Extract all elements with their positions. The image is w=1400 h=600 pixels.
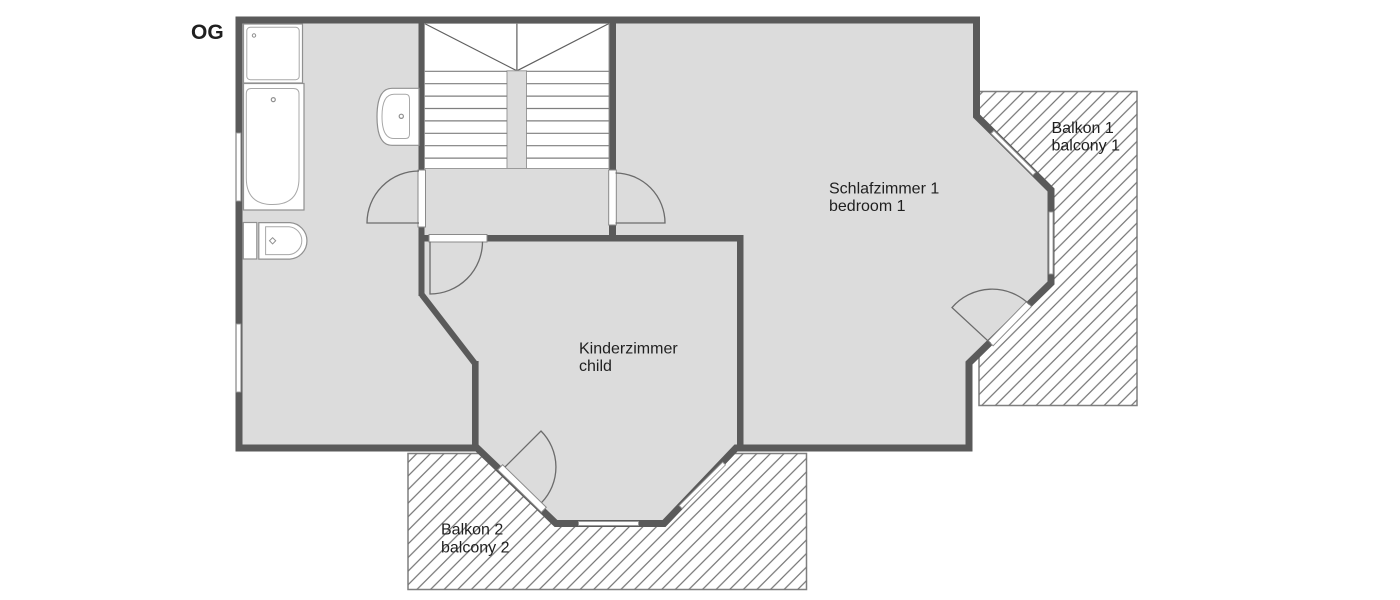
svg-text:balcony 1: balcony 1 (1052, 138, 1121, 155)
svg-text:child: child (579, 358, 612, 375)
svg-text:Kinderzimmer: Kinderzimmer (579, 340, 678, 357)
svg-text:Balkon 1: Balkon 1 (1052, 120, 1114, 137)
svg-text:OG: OG (191, 21, 224, 44)
svg-text:Balkon 2: Balkon 2 (441, 522, 503, 539)
svg-text:balcony 2: balcony 2 (441, 540, 510, 557)
svg-text:bedroom 1: bedroom 1 (829, 198, 906, 215)
svg-text:Schlafzimmer 1: Schlafzimmer 1 (829, 180, 939, 197)
